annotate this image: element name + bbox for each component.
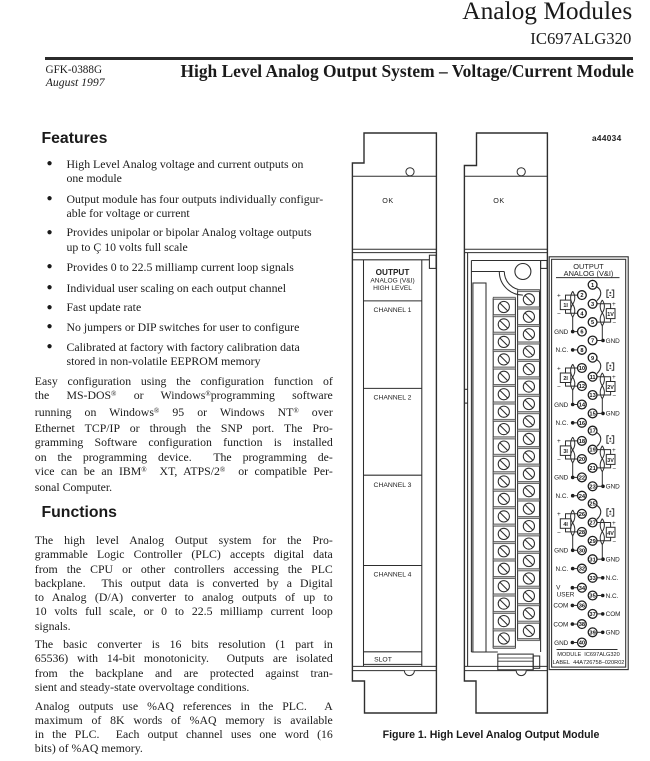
svg-text:22: 22 bbox=[579, 476, 585, 482]
svg-text:18: 18 bbox=[579, 439, 585, 445]
svg-text:−: − bbox=[557, 457, 561, 464]
svg-text:1V: 1V bbox=[607, 312, 614, 318]
svg-text:GND: GND bbox=[554, 329, 569, 336]
svg-text:40: 40 bbox=[579, 641, 585, 647]
svg-text:2V: 2V bbox=[607, 385, 614, 391]
svg-text:27: 27 bbox=[589, 521, 595, 527]
svg-text:13: 13 bbox=[589, 393, 595, 399]
svg-text:GND: GND bbox=[606, 630, 621, 637]
svg-text:26: 26 bbox=[579, 512, 585, 518]
svg-text:12: 12 bbox=[579, 384, 585, 390]
svg-text:COM: COM bbox=[606, 611, 621, 618]
svg-text:−: − bbox=[612, 539, 616, 546]
svg-text:N.C.: N.C. bbox=[556, 420, 569, 427]
svg-text:11: 11 bbox=[590, 375, 596, 381]
svg-text:37: 37 bbox=[589, 612, 595, 618]
svg-text:−: − bbox=[612, 466, 616, 473]
svg-text:5: 5 bbox=[591, 320, 594, 326]
svg-text:a44034: a44034 bbox=[592, 133, 622, 143]
svg-text:ANALOG (V&I): ANALOG (V&I) bbox=[370, 278, 414, 285]
svg-text:34: 34 bbox=[579, 586, 586, 592]
svg-text:7: 7 bbox=[591, 339, 594, 345]
svg-text:39: 39 bbox=[589, 630, 595, 636]
svg-text:SLOT: SLOT bbox=[374, 656, 392, 663]
svg-text:+: + bbox=[557, 438, 561, 445]
svg-text:−: − bbox=[612, 320, 616, 327]
svg-text:OK: OK bbox=[493, 196, 504, 205]
svg-text:30: 30 bbox=[579, 548, 585, 554]
svg-text:N.C.: N.C. bbox=[556, 566, 569, 573]
svg-text:GND: GND bbox=[554, 402, 569, 409]
svg-text:−: − bbox=[612, 393, 616, 400]
svg-text:N.C.: N.C. bbox=[606, 575, 619, 582]
svg-text:+: + bbox=[557, 365, 561, 372]
svg-text:1I: 1I bbox=[563, 303, 568, 309]
svg-text:19: 19 bbox=[589, 448, 595, 454]
svg-text:2I: 2I bbox=[563, 376, 568, 382]
svg-text:MODULE IC697ALG320: MODULE IC697ALG320 bbox=[557, 652, 620, 658]
svg-text:28: 28 bbox=[579, 530, 585, 536]
svg-text:GND: GND bbox=[554, 548, 569, 555]
svg-text:−: − bbox=[557, 530, 561, 537]
svg-text:23: 23 bbox=[589, 484, 595, 490]
svg-text:10: 10 bbox=[579, 366, 585, 372]
svg-text:+: + bbox=[557, 511, 561, 518]
svg-text:−: − bbox=[557, 311, 561, 318]
svg-text:4V: 4V bbox=[607, 531, 614, 537]
svg-text:33: 33 bbox=[589, 576, 595, 582]
svg-text:HIGH LEVEL: HIGH LEVEL bbox=[373, 285, 412, 292]
svg-text:GND: GND bbox=[554, 640, 569, 647]
svg-text:32: 32 bbox=[579, 567, 585, 573]
svg-text:N.C.: N.C. bbox=[556, 347, 569, 354]
svg-text:3I: 3I bbox=[563, 449, 568, 455]
svg-text:2: 2 bbox=[580, 293, 583, 299]
svg-text:1: 1 bbox=[591, 283, 594, 289]
svg-text:GND: GND bbox=[554, 475, 569, 482]
svg-text:GND: GND bbox=[606, 484, 621, 491]
svg-text:31: 31 bbox=[589, 557, 595, 563]
svg-text:ANALOG (V&I): ANALOG (V&I) bbox=[564, 269, 614, 278]
svg-text:+: + bbox=[557, 292, 561, 299]
svg-text:29: 29 bbox=[589, 539, 595, 545]
svg-text:GND: GND bbox=[606, 557, 621, 564]
svg-text:CHANNEL 4: CHANNEL 4 bbox=[374, 571, 412, 578]
svg-text:COM: COM bbox=[553, 603, 568, 610]
svg-text:9: 9 bbox=[591, 356, 594, 362]
svg-text:+: + bbox=[612, 301, 616, 308]
svg-text:8: 8 bbox=[580, 348, 583, 354]
svg-text:6: 6 bbox=[580, 330, 583, 336]
svg-text:OUTPUT: OUTPUT bbox=[376, 268, 410, 277]
svg-text:OK: OK bbox=[382, 196, 393, 205]
svg-text:4I: 4I bbox=[563, 522, 568, 528]
svg-text:COM: COM bbox=[553, 621, 568, 628]
svg-text:+: + bbox=[612, 447, 616, 454]
svg-text:GND: GND bbox=[606, 338, 621, 345]
svg-text:V: V bbox=[556, 585, 561, 592]
svg-text:CHANNEL 3: CHANNEL 3 bbox=[374, 482, 412, 489]
svg-text:USER: USER bbox=[557, 592, 575, 599]
svg-text:20: 20 bbox=[579, 457, 585, 463]
svg-text:24: 24 bbox=[579, 494, 586, 500]
svg-text:N.C.: N.C. bbox=[606, 593, 619, 600]
svg-text:21: 21 bbox=[589, 466, 595, 472]
svg-text:16: 16 bbox=[579, 421, 585, 427]
svg-text:LABEL 44A726758–020R02: LABEL 44A726758–020R02 bbox=[553, 660, 625, 666]
svg-text:25: 25 bbox=[589, 502, 595, 508]
svg-text:36: 36 bbox=[579, 604, 585, 610]
svg-text:17: 17 bbox=[589, 429, 595, 435]
svg-text:+: + bbox=[612, 520, 616, 527]
svg-text:14: 14 bbox=[579, 403, 586, 409]
svg-text:15: 15 bbox=[589, 412, 595, 418]
svg-text:35: 35 bbox=[589, 594, 595, 600]
svg-text:−: − bbox=[557, 384, 561, 391]
svg-text:CHANNEL 2: CHANNEL 2 bbox=[374, 394, 412, 401]
svg-text:N.C.: N.C. bbox=[556, 493, 569, 500]
svg-text:38: 38 bbox=[579, 622, 585, 628]
svg-text:GND: GND bbox=[606, 411, 621, 418]
svg-text:+: + bbox=[612, 374, 616, 381]
svg-text:3V: 3V bbox=[607, 458, 614, 464]
svg-text:CHANNEL 1: CHANNEL 1 bbox=[374, 307, 412, 314]
svg-text:3: 3 bbox=[591, 302, 594, 308]
